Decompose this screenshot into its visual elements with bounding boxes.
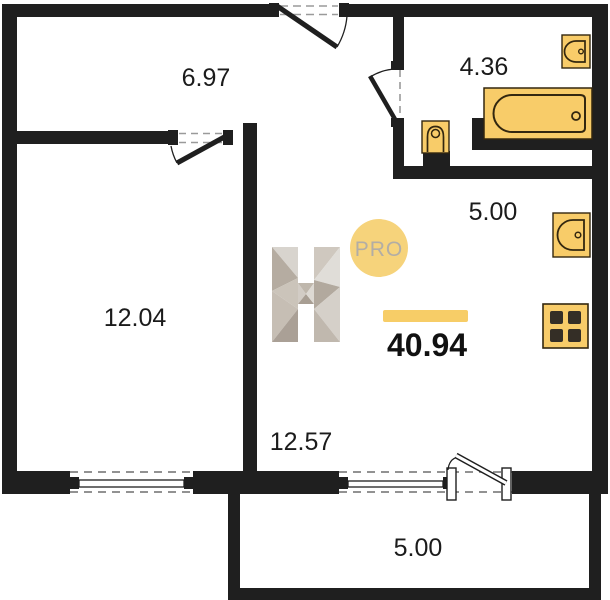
stove: [543, 304, 588, 348]
room-label-kitchen: 5.00: [469, 198, 518, 226]
bathroom-door-swing-arc: [370, 69, 396, 77]
bedroom-window-cap-right: [184, 477, 193, 489]
kitchen-sink-drain-icon: [575, 232, 581, 238]
total-area-value: 40.94: [387, 327, 467, 363]
entry-door-swing-arc: [337, 16, 347, 47]
wall-bathroom-left-upper: [393, 17, 404, 62]
room-label-bedroom: 12.04: [104, 304, 167, 332]
room-label-balcony: 5.00: [394, 534, 443, 562]
bedroom-door: [168, 130, 233, 163]
bedroom-door-jamb-left: [168, 130, 178, 145]
room-label-hallway: 6.97: [182, 64, 231, 92]
bedroom-window-cap-left: [70, 477, 79, 489]
stove-burner-icon: [568, 311, 581, 324]
bathtub-drain-icon: [572, 112, 580, 120]
toilet-flush-icon: [432, 130, 440, 138]
living-window-cap-left: [339, 477, 348, 489]
bedroom-window-frame: [79, 480, 184, 487]
wall-bottom-seg3: [512, 471, 608, 494]
kitchen-sink: [553, 213, 590, 257]
entry-door-jamb-left: [269, 3, 279, 17]
bathroom-door-leaf: [370, 76, 396, 121]
wall-left: [2, 4, 17, 494]
entry-door-jamb-right: [339, 3, 349, 17]
room-label-living-room: 12.57: [270, 428, 333, 456]
wall-balcony-right: [589, 494, 601, 600]
wall-right: [592, 4, 608, 494]
living-window-frame: [348, 481, 443, 487]
balcony-door-frame-left: [447, 468, 456, 500]
balcony-door-leaf-fill: [456, 456, 506, 484]
bathtub: [484, 88, 592, 139]
room-label-bathroom: 4.36: [460, 53, 509, 81]
logo-h-icon: [272, 247, 340, 342]
wall-top-right: [347, 4, 608, 17]
balcony-door: [447, 456, 511, 501]
wall-bottom-seg2: [193, 471, 339, 494]
bedroom-window: [70, 472, 193, 492]
stove-body: [543, 304, 588, 348]
floor-plan: PRO 40.94 6.97 4.36 5.00 12.04 12.57 5.0…: [0, 0, 610, 600]
pro-badge-label: PRO: [355, 238, 404, 261]
wall-top-left: [2, 4, 269, 17]
pro-badge: PRO: [350, 219, 408, 277]
wall-bedroom-top: [17, 131, 168, 144]
wall-balcony-left: [228, 494, 240, 600]
wall-bathroom-bottom: [393, 166, 592, 179]
wall-bedroom-right: [243, 123, 257, 494]
floor-plan-drawing: PRO 40.94 6.97 4.36 5.00 12.04 12.57 5.0…: [0, 0, 610, 600]
wall-balcony-bottom: [228, 588, 601, 600]
total-area-accent-bar: [383, 310, 468, 322]
stove-burner-icon: [550, 311, 563, 324]
bathroom-sink: [562, 35, 590, 68]
entry-door: [269, 3, 349, 47]
bedroom-door-leaf: [177, 135, 228, 163]
bathroom-sink-drain-icon: [579, 49, 584, 54]
stove-burner-icon: [568, 329, 581, 342]
bedroom-door-swing-arc: [171, 146, 177, 163]
wall-bottom-seg1: [2, 471, 70, 494]
toilet: [422, 121, 450, 168]
stove-burner-icon: [550, 329, 563, 342]
entry-door-leaf: [277, 6, 337, 47]
wall-under-tub: [472, 139, 592, 150]
bathroom-door: [370, 61, 404, 127]
